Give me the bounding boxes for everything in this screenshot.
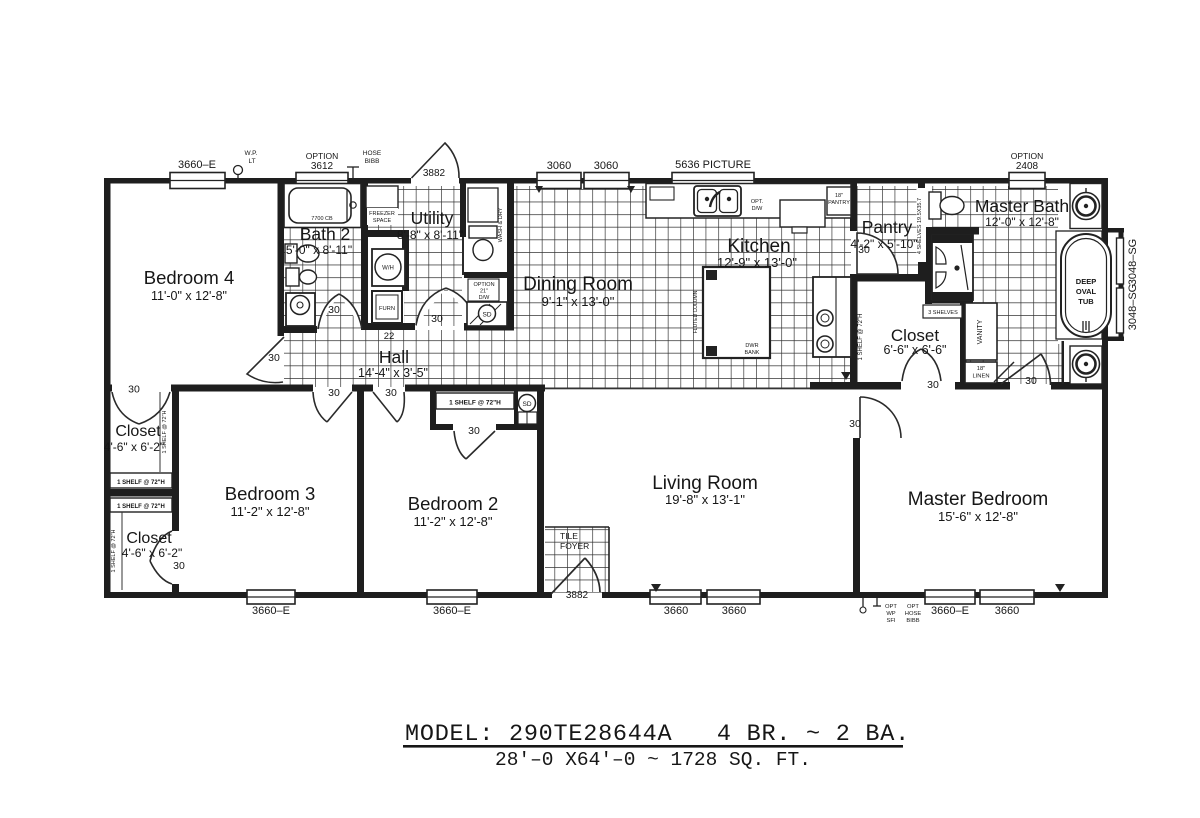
svg-text:3 SHELVES: 3 SHELVES	[928, 310, 958, 316]
svg-text:3882: 3882	[566, 590, 589, 601]
svg-text:4 SHELVES 19.5X35.7: 4 SHELVES 19.5X35.7	[917, 198, 923, 254]
svg-text:SPACE: SPACE	[373, 218, 392, 224]
svg-text:LT: LT	[248, 158, 255, 165]
svg-text:Closet: Closet	[126, 530, 172, 547]
svg-text:1 SHELF @ 72"H: 1 SHELF @ 72"H	[117, 504, 165, 510]
svg-text:28'–0 X64'–0 ~ 1728 SQ. FT.: 28'–0 X64'–0 ~ 1728 SQ. FT.	[495, 749, 811, 771]
svg-text:Closet: Closet	[115, 423, 161, 440]
svg-text:LINEN: LINEN	[972, 374, 989, 380]
svg-text:11'-0" x 12'-8": 11'-0" x 12'-8"	[151, 289, 227, 303]
svg-text:19'-8" x 13'-1": 19'-8" x 13'-1"	[665, 492, 745, 507]
svg-text:FOYER: FOYER	[560, 541, 589, 551]
svg-text:3660: 3660	[722, 605, 746, 617]
svg-text:Pantry: Pantry	[862, 217, 913, 237]
svg-text:WP: WP	[886, 611, 895, 617]
svg-text:DEEP: DEEP	[1076, 277, 1096, 286]
svg-text:3048–SG: 3048–SG	[1127, 284, 1139, 330]
svg-text:30: 30	[927, 379, 939, 391]
svg-text:22: 22	[384, 331, 395, 342]
svg-text:Hall: Hall	[379, 347, 409, 367]
svg-text:30: 30	[431, 313, 443, 325]
svg-text:9'-1" x 13'-0": 9'-1" x 13'-0"	[542, 294, 615, 309]
svg-text:3660: 3660	[664, 605, 688, 617]
svg-text:11'-2" x 12'-8": 11'-2" x 12'-8"	[231, 504, 310, 519]
svg-text:30: 30	[849, 418, 861, 430]
svg-text:7700 CB: 7700 CB	[311, 216, 333, 222]
svg-text:TUB: TUB	[1078, 297, 1094, 306]
svg-text:30: 30	[268, 352, 280, 364]
svg-text:11'-2" x 12'-8": 11'-2" x 12'-8"	[414, 514, 493, 529]
svg-text:FREEZER: FREEZER	[369, 211, 395, 217]
svg-text:30: 30	[468, 425, 480, 437]
svg-text:1 SHELF @ 72"H: 1 SHELF @ 72"H	[449, 400, 501, 407]
svg-text:30: 30	[128, 384, 140, 396]
svg-text:TILE: TILE	[560, 531, 578, 541]
svg-text:5636 PICTURE: 5636 PICTURE	[675, 159, 751, 171]
svg-text:30: 30	[173, 560, 185, 572]
svg-text:OPTION: OPTION	[306, 151, 339, 161]
svg-text:W/H: W/H	[382, 266, 394, 272]
svg-text:3660–E: 3660–E	[178, 159, 216, 171]
svg-text:3612: 3612	[311, 161, 334, 172]
svg-text:SD: SD	[522, 401, 531, 408]
svg-text:Utility: Utility	[411, 208, 454, 228]
svg-text:3660–E: 3660–E	[433, 605, 471, 617]
svg-text:OPTION: OPTION	[1011, 151, 1044, 161]
svg-text:OPT: OPT	[907, 604, 919, 610]
svg-text:6'-6" x 6'-6": 6'-6" x 6'-6"	[884, 343, 947, 357]
svg-text:BIBB: BIBB	[365, 158, 380, 165]
svg-text:3060: 3060	[594, 160, 618, 172]
svg-text:PANTRY: PANTRY	[828, 200, 850, 206]
svg-text:D/W: D/W	[479, 295, 491, 301]
svg-text:D/W: D/W	[752, 206, 764, 212]
svg-text:Master Bedroom: Master Bedroom	[908, 489, 1048, 510]
svg-text:3660–E: 3660–E	[252, 605, 290, 617]
svg-text:FURN: FURN	[379, 306, 395, 312]
svg-text:5'-0" x 8'-11": 5'-0" x 8'-11"	[286, 243, 352, 257]
svg-text:4'-6" x 6'-2": 4'-6" x 6'-2"	[122, 546, 182, 560]
svg-text:12'-0" x 12'-8": 12'-0" x 12'-8"	[985, 215, 1059, 229]
svg-text:8'-8" x 8'-11": 8'-8" x 8'-11"	[397, 228, 463, 242]
svg-text:WASH & DRY: WASH & DRY	[498, 207, 504, 242]
svg-text:BIBB: BIBB	[906, 618, 919, 624]
svg-text:Kitchen: Kitchen	[727, 236, 790, 257]
svg-text:1 SHELF @ 72"H: 1 SHELF @ 72"H	[858, 314, 864, 361]
svg-text:1 SHELF @ 72"H: 1 SHELF @ 72"H	[111, 529, 117, 572]
svg-text:Bedroom 4: Bedroom 4	[144, 267, 235, 288]
svg-text:12'-9" x 13'-0": 12'-9" x 13'-0"	[717, 255, 797, 270]
svg-text:HOSE: HOSE	[363, 150, 382, 157]
svg-text:18": 18"	[835, 193, 843, 199]
svg-text:4'-6" x 6'-2": 4'-6" x 6'-2"	[104, 440, 164, 454]
svg-text:30: 30	[858, 244, 870, 256]
svg-text:Bath 2: Bath 2	[300, 224, 351, 244]
svg-text:15'-6" x 12'-8": 15'-6" x 12'-8"	[938, 509, 1018, 524]
svg-text:3882: 3882	[423, 168, 446, 179]
svg-text:30: 30	[328, 387, 340, 399]
svg-text:FLUTED COLUMN: FLUTED COLUMN	[693, 290, 699, 333]
svg-text:Dining Room: Dining Room	[523, 274, 633, 295]
svg-text:30: 30	[385, 387, 397, 399]
svg-text:BANK: BANK	[745, 350, 760, 356]
svg-text:2408: 2408	[1016, 161, 1039, 172]
svg-text:SD: SD	[482, 312, 491, 319]
svg-text:30: 30	[328, 304, 340, 316]
svg-text:Master Bath: Master Bath	[975, 196, 1069, 216]
svg-text:18": 18"	[977, 366, 986, 372]
svg-text:30: 30	[1025, 375, 1037, 387]
svg-text:MODEL: 290TE28644A 4 BR. ~ 2: MODEL: 290TE28644A 4 BR. ~ 2 BA.	[405, 721, 910, 748]
svg-text:1 SHELF @ 72"H: 1 SHELF @ 72"H	[117, 480, 165, 486]
svg-text:W.P.: W.P.	[245, 150, 258, 157]
svg-text:3048–SG: 3048–SG	[1127, 239, 1139, 285]
svg-text:OPTION: OPTION	[473, 282, 494, 288]
svg-text:3660: 3660	[995, 605, 1019, 617]
svg-text:OPT: OPT	[885, 604, 897, 610]
svg-text:SFI: SFI	[886, 618, 895, 624]
svg-text:Bedroom 2: Bedroom 2	[408, 493, 499, 514]
svg-text:OVAL: OVAL	[1076, 287, 1097, 296]
svg-text:HOSE: HOSE	[905, 611, 922, 617]
svg-text:3660–E: 3660–E	[931, 605, 969, 617]
svg-text:Bedroom 3: Bedroom 3	[225, 483, 316, 504]
svg-text:14'-4" x 3'-5": 14'-4" x 3'-5"	[358, 366, 428, 380]
svg-text:OPT.: OPT.	[751, 199, 764, 205]
svg-text:Living Room: Living Room	[652, 473, 758, 494]
svg-text:3060: 3060	[547, 160, 571, 172]
svg-text:VANITY: VANITY	[977, 319, 984, 344]
svg-text:DWR: DWR	[745, 343, 758, 349]
svg-text:21": 21"	[480, 289, 488, 295]
